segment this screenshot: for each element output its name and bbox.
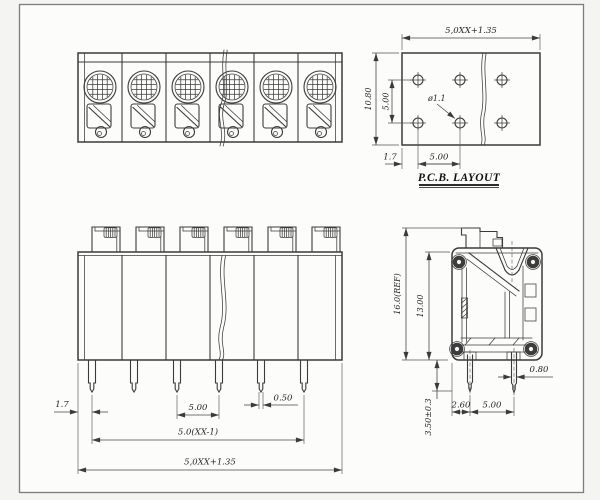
dim-side-pin-length: 3.50±0.3	[424, 398, 433, 435]
dim-side-body-height: 13.00	[416, 295, 425, 318]
dim-side-pin-thickness: 0.80	[530, 365, 550, 375]
dim-pcb-col-pitch: 5.00	[430, 153, 450, 163]
dim-side-overall-height: 16.0(REF)	[393, 273, 402, 314]
technical-drawing: 5,0XX+1.35 10.80 5.00 ø1.1 1.7 5.00 P.C.…	[0, 0, 600, 500]
drawing-canvas: 5,0XX+1.35 10.80 5.00 ø1.1 1.7 5.00 P.C.…	[0, 0, 600, 500]
dim-front-pin-width: 0.50	[274, 394, 294, 404]
dim-side-edge-to-pin: 2.60	[451, 401, 472, 411]
dim-pcb-edge-offset: 1.7	[383, 153, 397, 163]
dim-front-pin-span: 5.0(XX-1)	[178, 427, 218, 438]
dim-pcb-hole-diameter: ø1.1	[427, 94, 446, 103]
dim-front-overall-width: 5,0XX+1.35	[184, 458, 236, 468]
dim-front-edge-offset: 1.7	[55, 400, 69, 410]
pcb-layout-title: P.C.B. LAYOUT	[418, 172, 501, 184]
dim-pcb-row-pitch: 5.00	[382, 93, 391, 111]
dim-front-pin-pitch: 5.00	[189, 403, 209, 413]
dim-side-pin-pitch: 5.00	[483, 401, 503, 411]
dim-pcb-overall-height: 10.80	[364, 88, 373, 111]
dim-pcb-overall-width: 5,0XX+1.35	[445, 26, 497, 36]
